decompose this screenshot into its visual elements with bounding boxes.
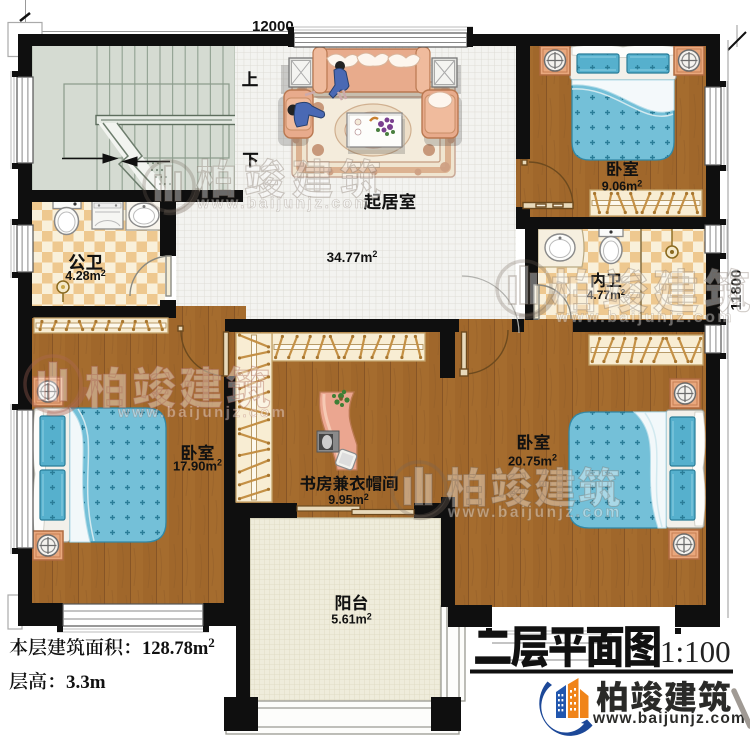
svg-text:www.baijunjz.com: www.baijunjz.com bbox=[555, 309, 734, 326]
svg-text:www.baijunjz.com: www.baijunjz.com bbox=[117, 404, 287, 421]
svg-text:9.95m2: 9.95m2 bbox=[328, 492, 368, 507]
svg-text:www.baijunjz.com: www.baijunjz.com bbox=[447, 504, 622, 521]
svg-text:1:100: 1:100 bbox=[660, 634, 731, 669]
svg-text:5.61m2: 5.61m2 bbox=[331, 612, 371, 627]
svg-text:20.75m2: 20.75m2 bbox=[508, 453, 557, 469]
svg-text:4.28m2: 4.28m2 bbox=[65, 268, 105, 283]
svg-text:12000: 12000 bbox=[252, 18, 294, 35]
svg-text:3.3m: 3.3m bbox=[66, 672, 106, 693]
svg-text:128.78m2: 128.78m2 bbox=[142, 635, 215, 659]
svg-text:www.baijunjz.com: www.baijunjz.com bbox=[592, 710, 746, 727]
svg-text:9.06m2: 9.06m2 bbox=[602, 179, 642, 194]
svg-text:www.baijunjz.com: www.baijunjz.com bbox=[196, 195, 371, 212]
svg-text:34.77m2: 34.77m2 bbox=[327, 249, 378, 265]
svg-text:17.90m2: 17.90m2 bbox=[173, 458, 222, 474]
